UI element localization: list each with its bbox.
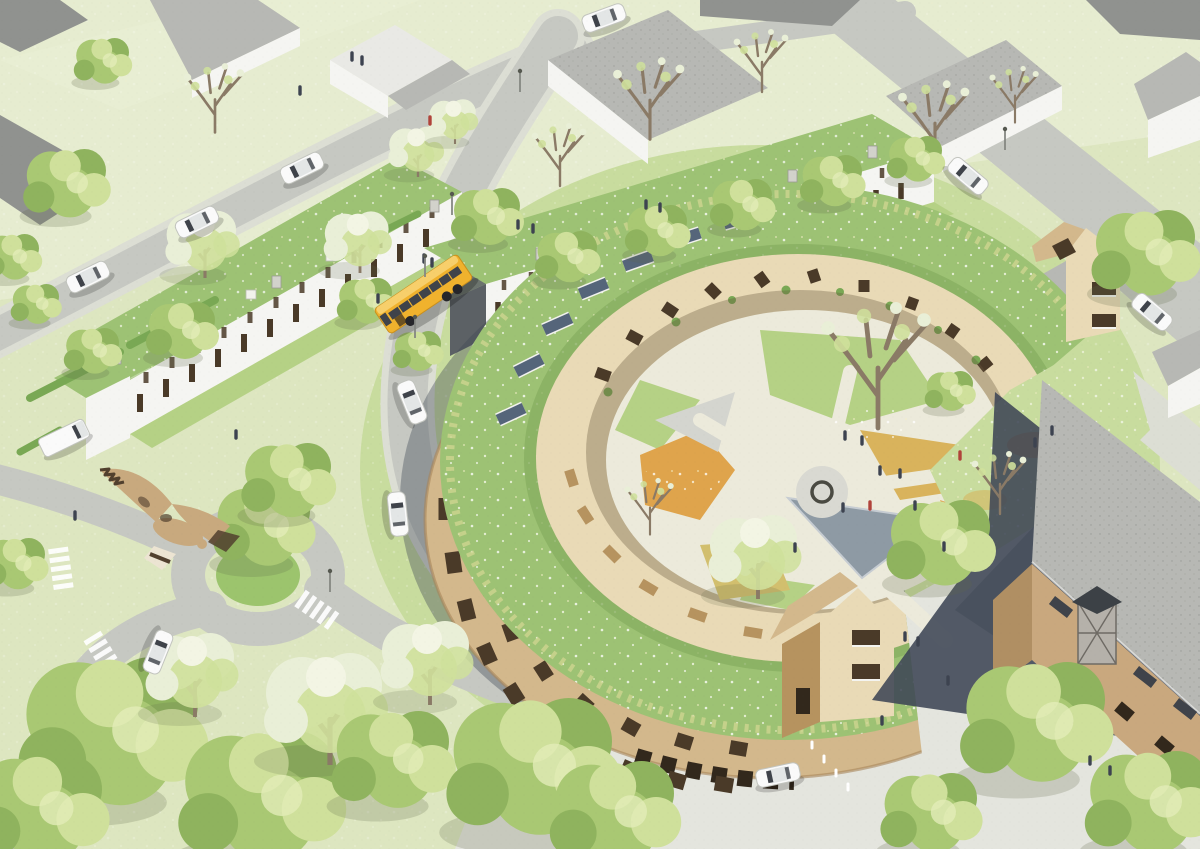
architectural-rendering (0, 0, 1200, 849)
print-grain-overlay (0, 0, 1200, 849)
rendering-canvas (0, 0, 1200, 849)
